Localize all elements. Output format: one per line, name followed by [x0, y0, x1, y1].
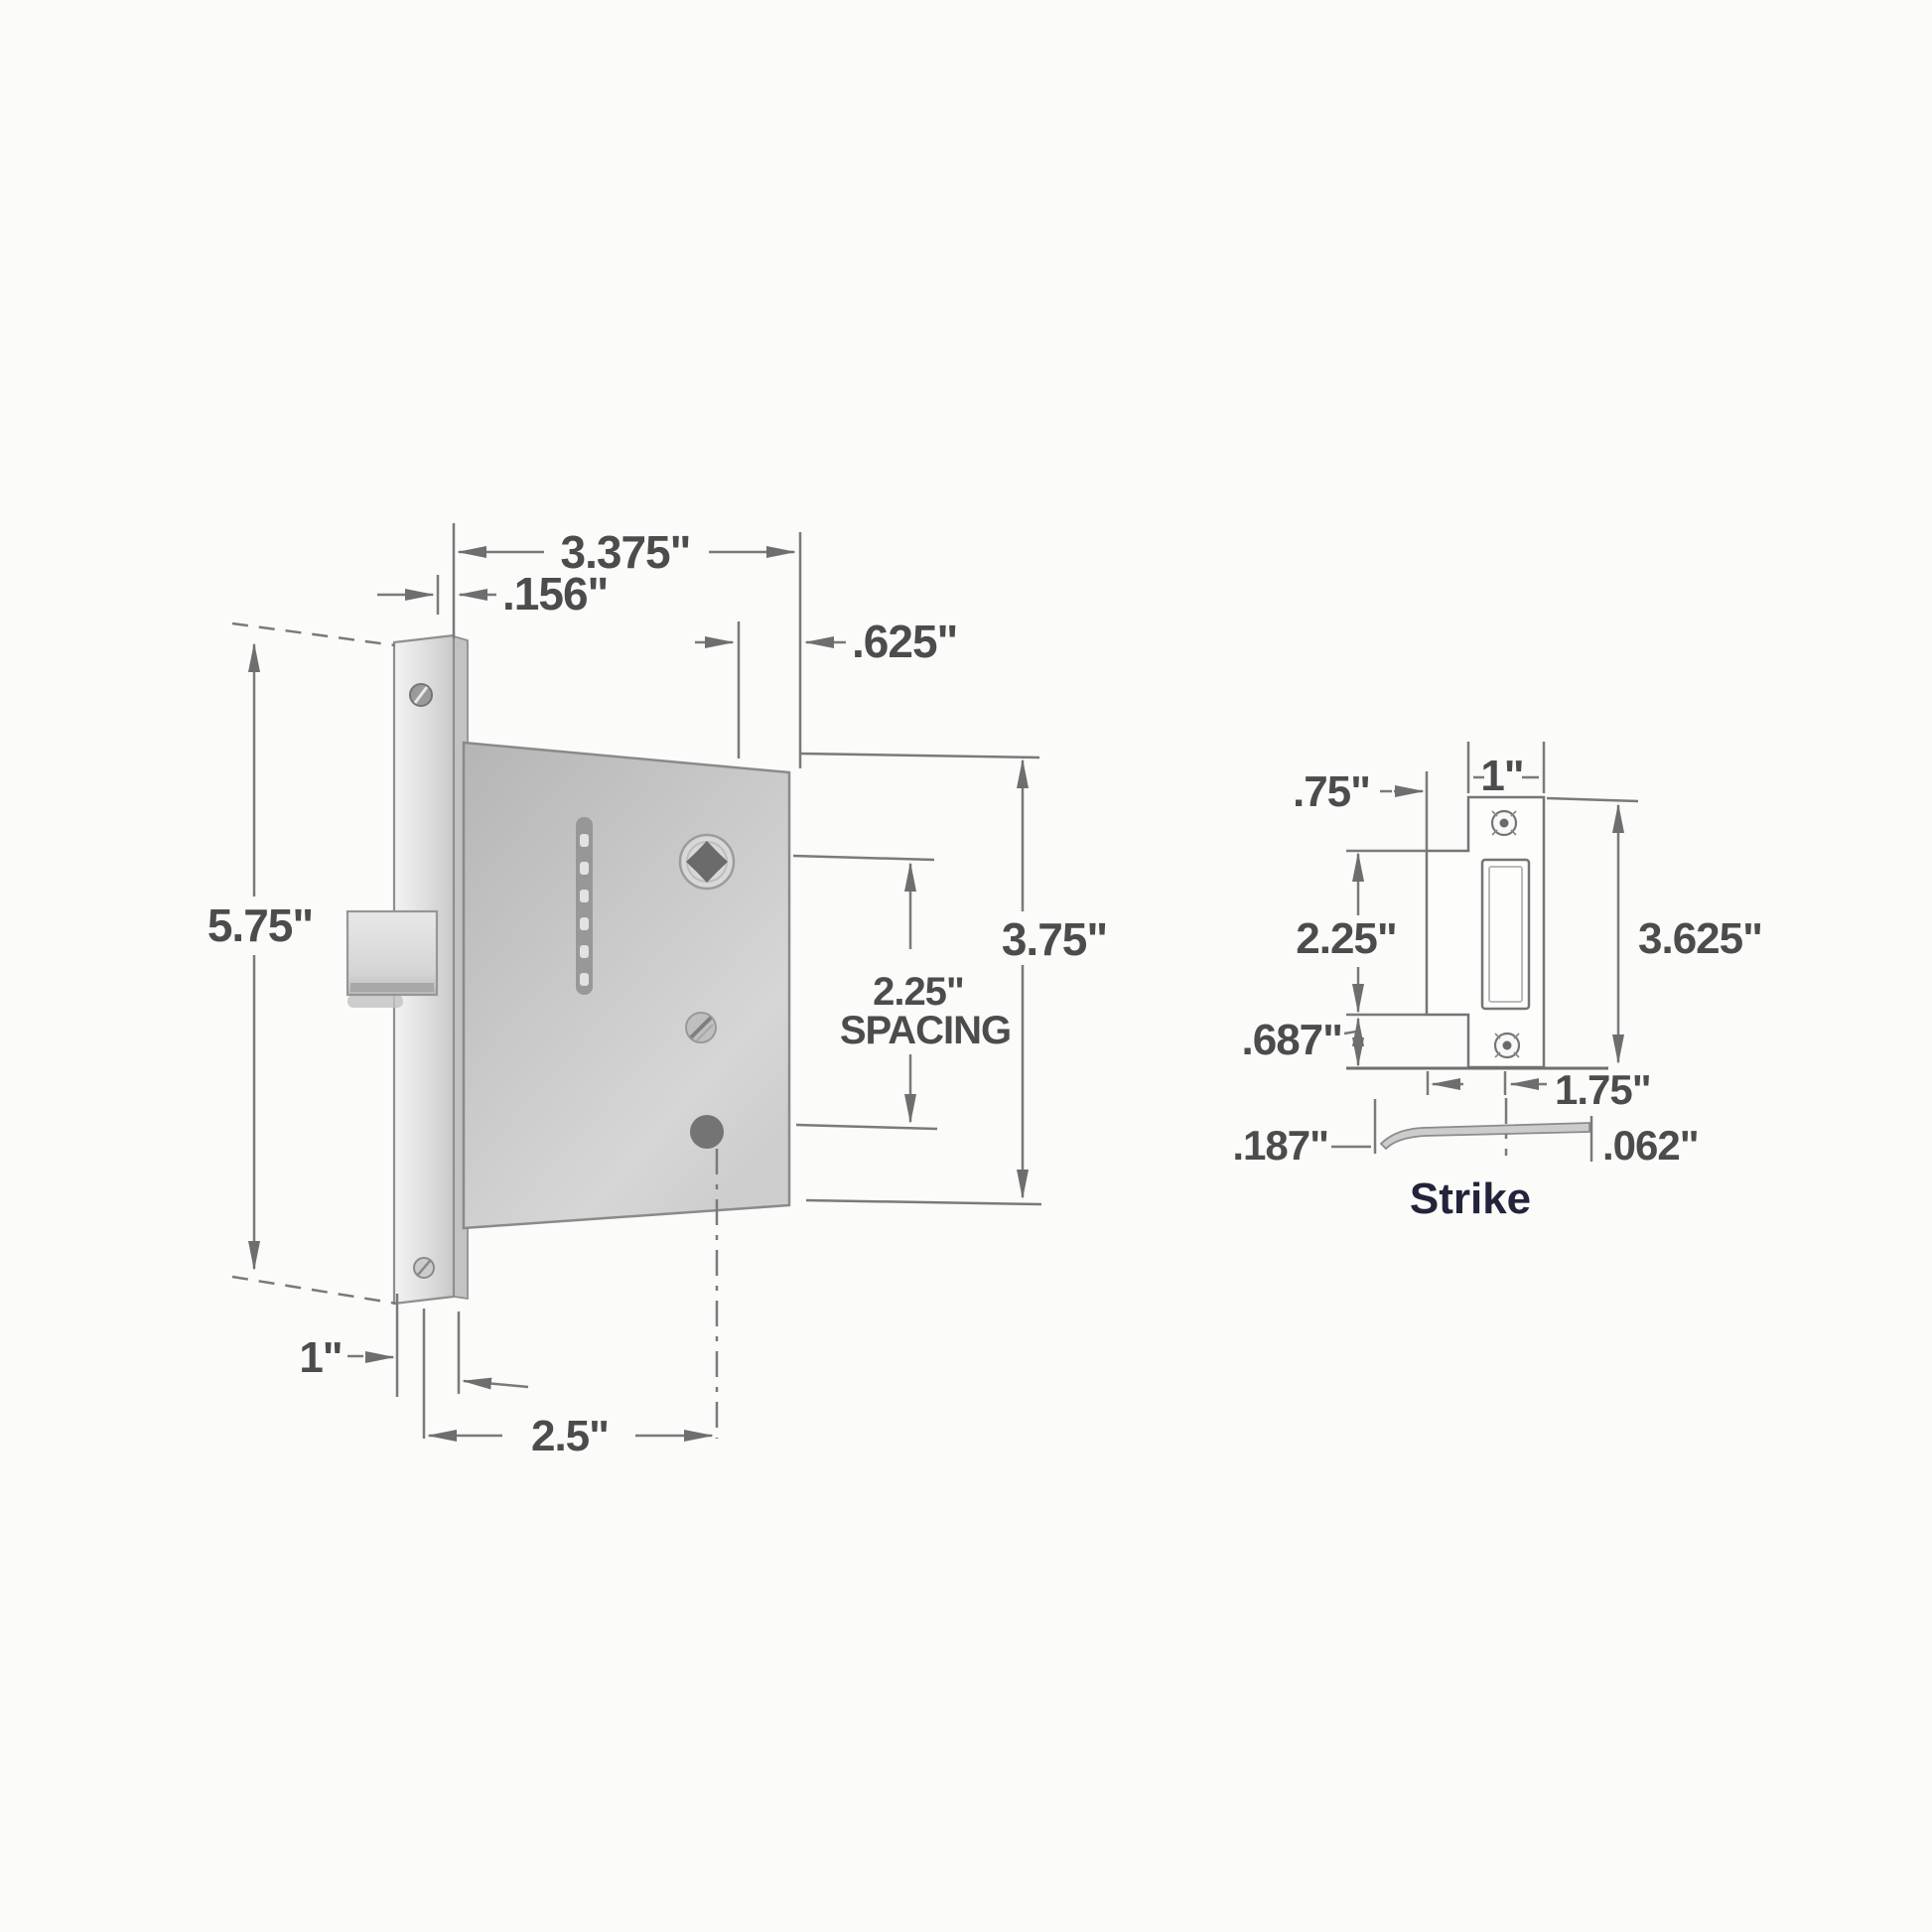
ext-line: [800, 754, 1039, 758]
drawing-page: 3.375" .156" .625" 5.75": [0, 0, 1932, 1932]
dim-hub-offset-label: .625": [852, 616, 957, 667]
leader-arrow: [464, 1381, 528, 1387]
faceplate-screw-bottom: [414, 1258, 434, 1278]
dim-spacing-label: 2.25": [873, 970, 964, 1014]
dim-lip-length: 1.75": [1428, 1066, 1651, 1113]
dim-faceplate-height-label: 5.75": [207, 899, 313, 951]
dim-plate-thickness-label: .062": [1602, 1122, 1699, 1169]
strike-caption: Strike: [1410, 1174, 1531, 1223]
dim-plate-thickness: .062": [1591, 1116, 1699, 1169]
dim-faceplate-width: 1": [299, 1294, 528, 1397]
strike-screw-top: [1492, 811, 1516, 835]
technical-drawing: 3.375" .156" .625" 5.75": [0, 0, 1932, 1932]
dim-mid-height-label: 2.25": [1296, 914, 1397, 963]
ext-line: [796, 1125, 937, 1129]
dim-faceplate-width-label: 1": [299, 1333, 342, 1382]
dim-plate-height: 3.625": [1547, 798, 1762, 1062]
case-slot: [576, 817, 593, 995]
ext-line: [806, 1200, 1041, 1204]
ext-line: [232, 623, 395, 645]
case-hole: [690, 1115, 724, 1149]
dim-plate-height-label: 3.625": [1638, 914, 1762, 963]
ext-line: [232, 1277, 397, 1304]
ext-line: [1547, 798, 1638, 801]
dim-faceplate-thickness-label: .156": [502, 568, 608, 620]
dim-case-height-label: 3.75": [1002, 913, 1107, 965]
dim-mid-height: 2.25": [1296, 851, 1427, 1015]
dim-lip-projection-label: .187": [1232, 1122, 1328, 1169]
dim-hub-offset: .625": [695, 616, 957, 759]
dim-lower-offset: .687": [1242, 1016, 1359, 1065]
spindle-hub: [680, 835, 734, 889]
dim-spacing: 2.25" SPACING: [793, 856, 1011, 1129]
strike-figure: 1" .75" 2.25" 3.625": [1232, 742, 1762, 1223]
ext-line: [793, 856, 934, 860]
latch-bolt: [347, 911, 437, 995]
dim-backset-label: 2.5": [531, 1412, 609, 1460]
dim-case-width: 3.375": [454, 523, 800, 768]
dim-faceplate-thickness: .156": [377, 568, 608, 620]
dim-spacing-word: SPACING: [840, 1009, 1011, 1052]
lock-case: [464, 743, 789, 1228]
dim-lip-offset: .75": [1293, 767, 1427, 851]
bolt-shadow: [347, 995, 403, 1008]
dim-lower-offset-label: .687": [1242, 1016, 1343, 1064]
dim-lip-offset-label: .75": [1293, 767, 1370, 816]
strike-screw-bottom: [1495, 1034, 1519, 1057]
dim-plate-width: 1": [1468, 742, 1544, 800]
lip-profile: [1381, 1123, 1589, 1149]
dim-lip-length-label: 1.75": [1555, 1066, 1651, 1113]
latch-opening: [1482, 860, 1529, 1009]
faceplate-screw-top: [410, 684, 432, 706]
leader-dash: [1344, 1032, 1356, 1034]
case-screw: [686, 1013, 716, 1042]
dim-lip-projection: .187": [1232, 1099, 1375, 1169]
dim-plate-width-label: 1": [1480, 752, 1523, 800]
mortise-lock-figure: 3.375" .156" .625" 5.75": [207, 523, 1107, 1460]
